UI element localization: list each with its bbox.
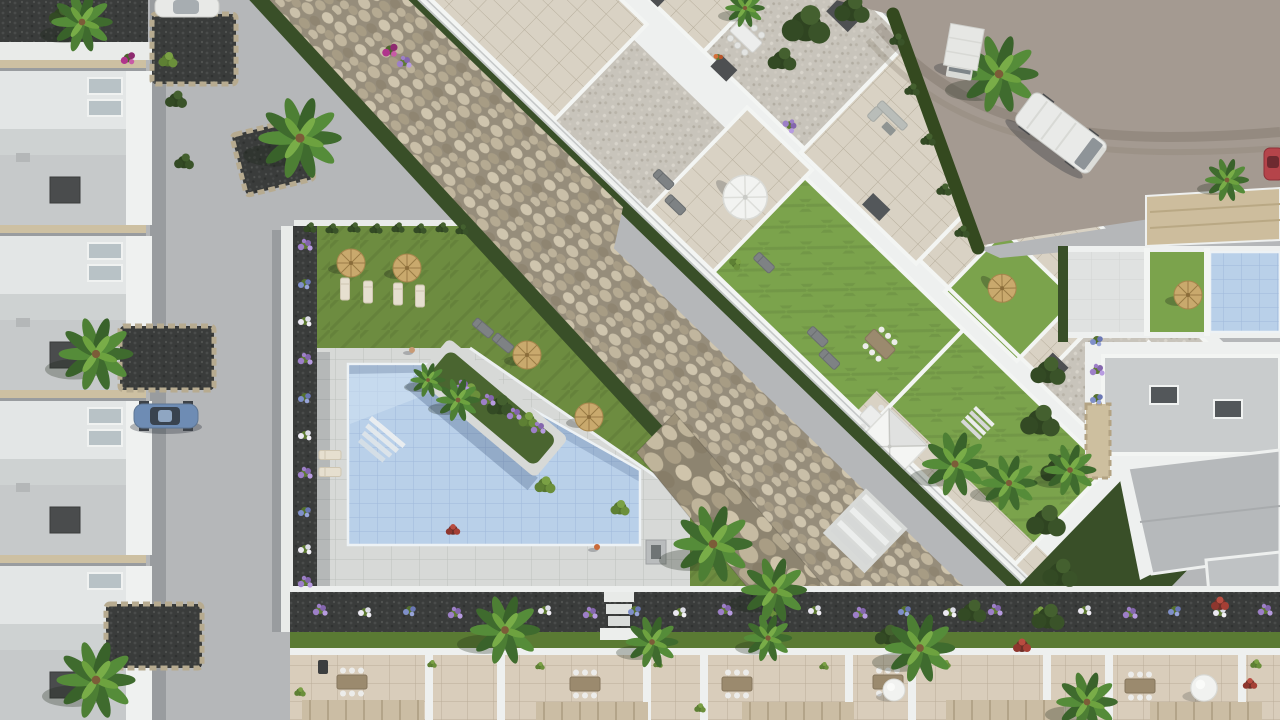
townhouse-unit	[0, 390, 152, 555]
sun-lounger	[341, 278, 350, 300]
skylight	[1150, 386, 1178, 404]
patio-dining-set	[1125, 672, 1155, 701]
skylight-panel	[50, 177, 80, 203]
townhouse-unit	[0, 60, 152, 225]
car-glass	[173, 0, 199, 14]
sun-lounger	[364, 281, 373, 303]
sun-lounger	[394, 283, 403, 305]
person	[409, 347, 415, 353]
skylight	[1214, 400, 1242, 418]
gravel-bed	[120, 326, 214, 390]
bottom-patio-row	[290, 586, 1280, 720]
garden-wall-top	[294, 220, 474, 226]
sun-lounger	[416, 285, 425, 307]
sun-lounger	[319, 468, 341, 477]
tiled-roof	[1146, 188, 1280, 246]
render-canvas	[0, 0, 1280, 720]
sun-lounger	[319, 451, 341, 460]
skylight-panel	[50, 507, 80, 533]
blue-car	[130, 401, 202, 434]
patio-dining-set	[570, 670, 600, 699]
gravel-bed	[152, 14, 236, 84]
patio-dining-set	[722, 670, 752, 699]
barbecue-grill	[318, 660, 328, 674]
patio-dining-set	[337, 668, 367, 697]
red-car	[1264, 148, 1280, 180]
white-car	[155, 0, 219, 17]
right-villa-a	[1058, 246, 1280, 342]
flat-roof	[1103, 356, 1280, 454]
person	[594, 544, 600, 550]
car-glass	[1267, 156, 1279, 168]
garden-border-wall	[272, 226, 317, 632]
aerial-render	[0, 0, 1280, 720]
